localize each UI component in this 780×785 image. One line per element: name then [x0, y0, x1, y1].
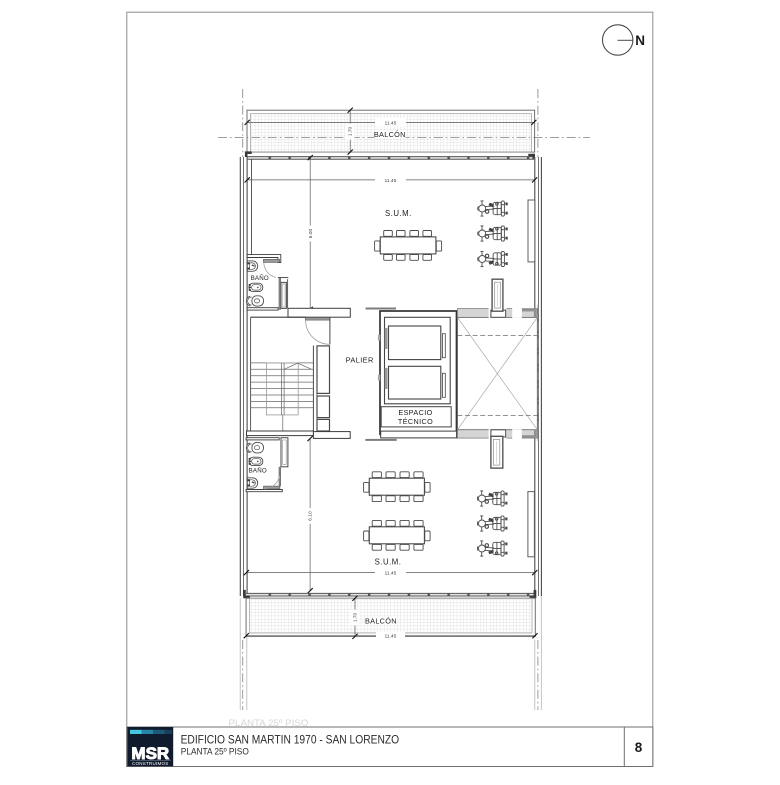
svg-text:PALIER: PALIER: [346, 356, 374, 365]
svg-text:BAÑO: BAÑO: [249, 467, 267, 474]
svg-text:BAÑO: BAÑO: [251, 275, 269, 282]
svg-text:CONSTRUIMOS: CONSTRUIMOS: [132, 761, 169, 766]
svg-text:BALCÓN: BALCÓN: [374, 130, 406, 139]
svg-text:S.U.M.: S.U.M.: [385, 209, 412, 218]
svg-text:6.10: 6.10: [308, 511, 314, 521]
svg-text:1.70: 1.70: [352, 612, 358, 622]
svg-text:MSR: MSR: [131, 744, 169, 763]
svg-text:BALCÓN: BALCÓN: [365, 617, 397, 626]
svg-text:11.45: 11.45: [384, 178, 396, 184]
svg-text:1.70: 1.70: [348, 126, 354, 136]
svg-text:N: N: [635, 33, 645, 48]
svg-text:6.00: 6.00: [308, 228, 314, 238]
svg-text:8: 8: [635, 740, 643, 755]
svg-text:S.U.M.: S.U.M.: [375, 557, 402, 566]
svg-text:TÉCNICO: TÉCNICO: [398, 417, 433, 426]
svg-text:11.45: 11.45: [384, 634, 396, 640]
svg-text:11.45: 11.45: [384, 571, 396, 577]
svg-text:11.45: 11.45: [384, 120, 396, 126]
svg-text:PLANTA 25º PISO: PLANTA 25º PISO: [181, 747, 249, 757]
svg-text:ESPACIO: ESPACIO: [398, 408, 432, 417]
svg-text:EDIFICIO SAN MARTIN 1970 - SAN: EDIFICIO SAN MARTIN 1970 - SAN LORENZO: [181, 733, 400, 747]
